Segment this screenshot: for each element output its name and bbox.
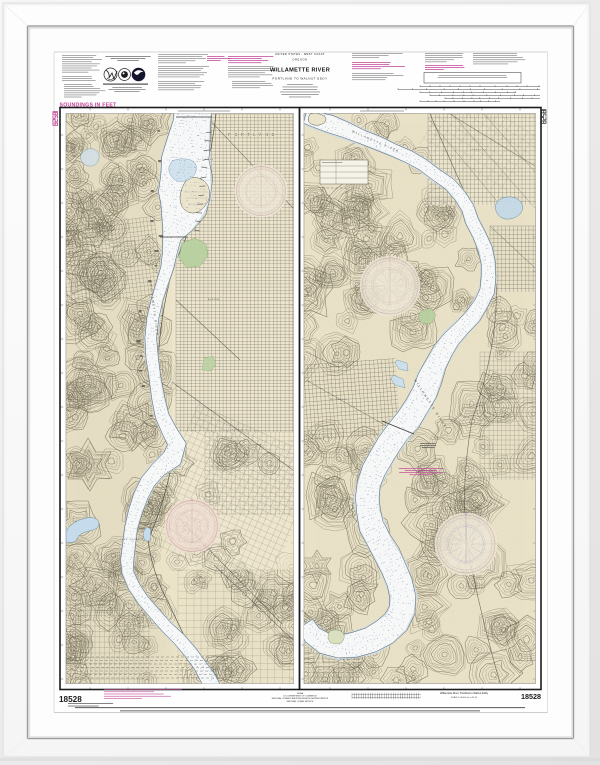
svg-text:PORTLAND TO WALNUT EDDY: PORTLAND TO WALNUT EDDY [272, 77, 327, 81]
svg-text:U.S. DEPARTMENT OF COMMERCE: U.S. DEPARTMENT OF COMMERCE [283, 695, 317, 698]
svg-text:UNITED STATES - WEST COAST: UNITED STATES - WEST COAST [275, 52, 325, 56]
svg-text:WILLAMETTE RIVER: WILLAMETTE RIVER [270, 68, 330, 74]
svg-text:Willamette River, Portland to: Willamette River, Portland to Walnut Edd… [440, 691, 489, 695]
svg-text:OREGON: OREGON [292, 58, 307, 62]
svg-text:SCALE 1:10,000 at Lat 45 26: SCALE 1:10,000 at Lat 45 26 [451, 696, 478, 699]
svg-text:NATIONAL OCEAN SERVICE: NATIONAL OCEAN SERVICE [287, 700, 314, 703]
svg-text:18528: 18528 [521, 692, 541, 701]
svg-text:NOAA: NOAA [297, 692, 304, 695]
svg-text:NATIONAL OCEANIC AND ATMOSPHER: NATIONAL OCEANIC AND ATMOSPHERIC ADMINIS… [272, 697, 329, 700]
svg-text:18528: 18528 [59, 695, 82, 704]
